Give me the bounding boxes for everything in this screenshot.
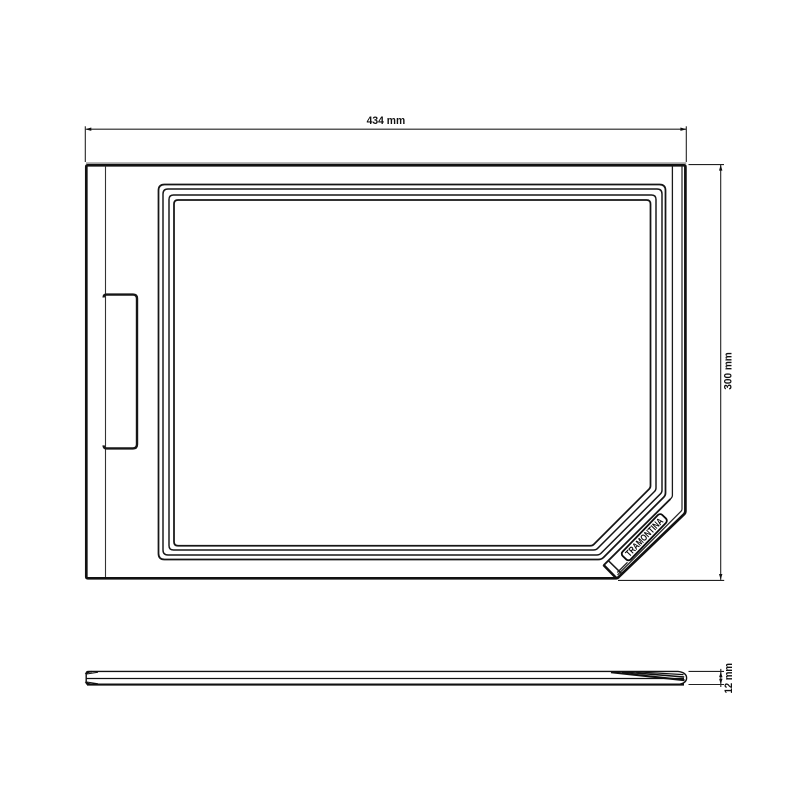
svg-text:300 mm: 300 mm xyxy=(722,352,734,390)
svg-text:434 mm: 434 mm xyxy=(367,115,406,127)
svg-text:12 mm: 12 mm xyxy=(723,663,735,694)
